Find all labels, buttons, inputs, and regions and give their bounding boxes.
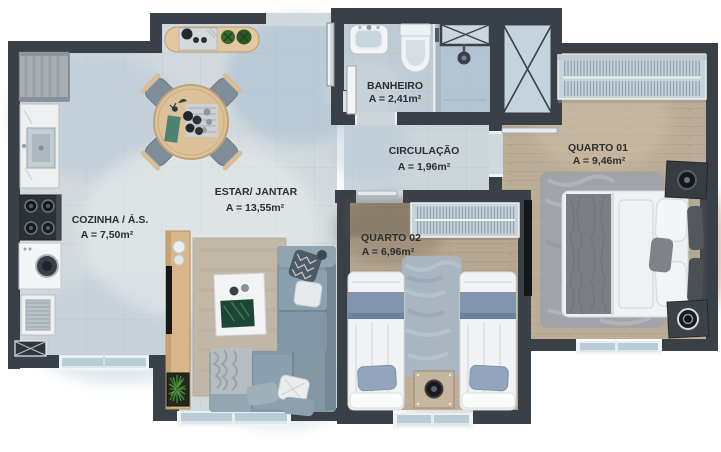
svg-text:A = 2,41m²: A = 2,41m² <box>369 93 422 105</box>
svg-text:CIRCULAÇÃO: CIRCULAÇÃO <box>389 144 460 157</box>
svg-text:QUARTO 01: QUARTO 01 <box>568 142 628 154</box>
svg-text:A = 9,46m²: A = 9,46m² <box>573 155 626 167</box>
svg-text:ESTAR/ JANTAR: ESTAR/ JANTAR <box>215 186 298 198</box>
svg-text:QUARTO 02: QUARTO 02 <box>361 232 421 244</box>
svg-text:A = 1,96m²: A = 1,96m² <box>398 161 451 173</box>
svg-text:A = 6,96m²: A = 6,96m² <box>362 246 415 258</box>
svg-text:A = 13,55m²: A = 13,55m² <box>226 202 285 214</box>
svg-text:COZINHA / Á.S.: COZINHA / Á.S. <box>72 213 149 226</box>
svg-text:A = 7,50m²: A = 7,50m² <box>81 229 134 241</box>
svg-text:BANHEIRO: BANHEIRO <box>367 80 423 92</box>
